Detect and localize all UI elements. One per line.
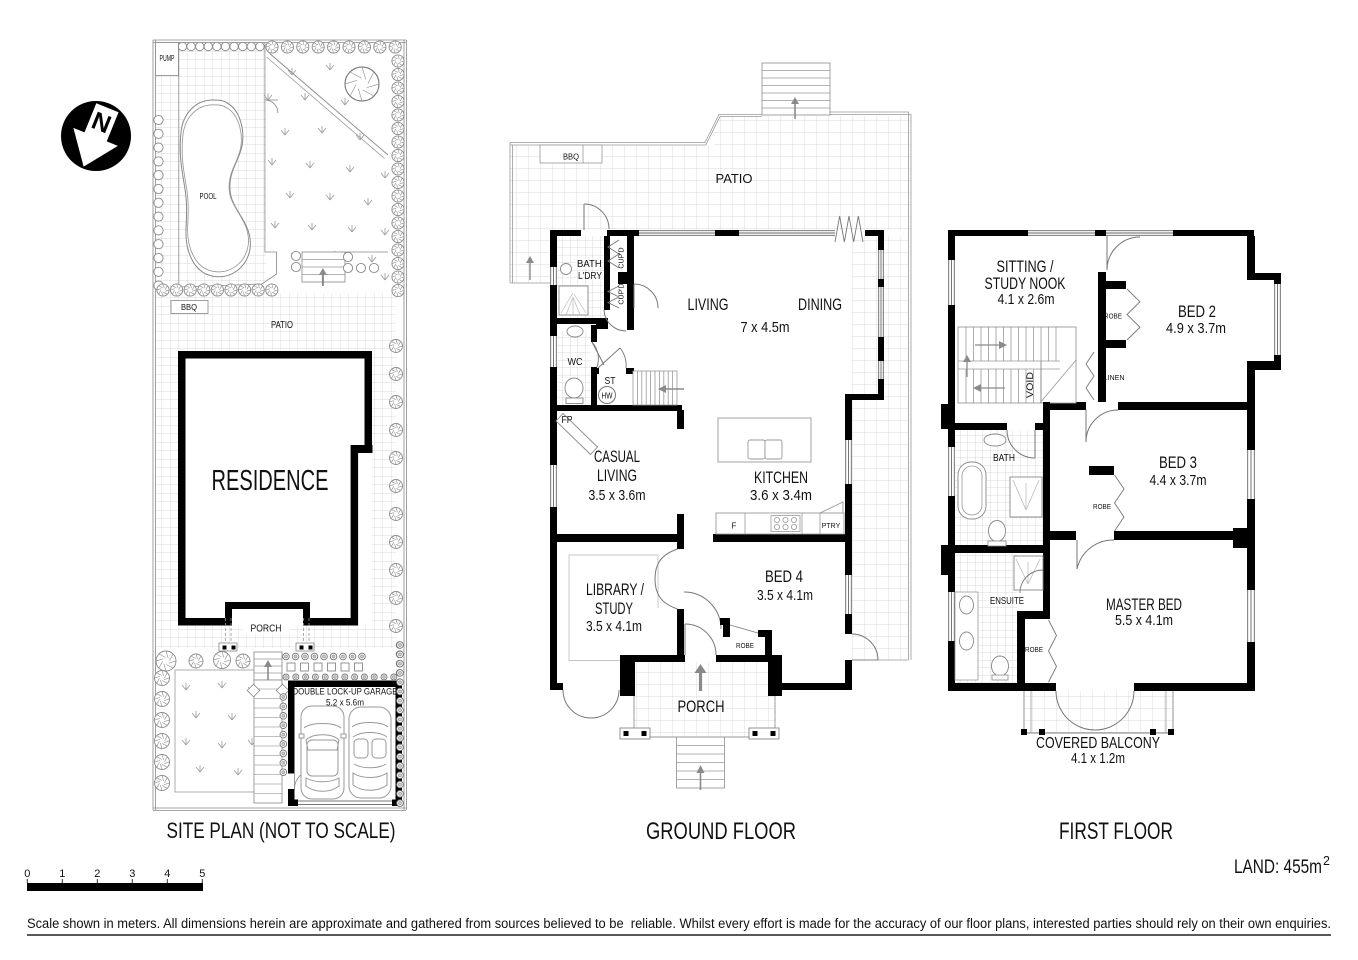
svg-text:1: 1	[59, 868, 65, 880]
svg-text:PATIO: PATIO	[716, 171, 753, 186]
svg-text:ROBE: ROBE	[1104, 314, 1122, 321]
svg-text:HW: HW	[602, 392, 613, 401]
svg-text:PTRY: PTRY	[822, 523, 841, 530]
svg-text:ROBE: ROBE	[1093, 504, 1111, 511]
svg-text:BED 4: BED 4	[765, 568, 803, 586]
svg-text:CASUAL: CASUAL	[594, 448, 640, 466]
svg-text:BATH /: BATH /	[577, 259, 607, 270]
svg-text:RESIDENCE: RESIDENCE	[212, 465, 329, 497]
svg-text:VOID: VOID	[1025, 372, 1036, 398]
svg-text:3: 3	[129, 868, 135, 880]
svg-text:LIBRARY /: LIBRARY /	[586, 581, 644, 599]
svg-text:GROUND FLOOR: GROUND FLOOR	[646, 818, 796, 845]
svg-text:DINING: DINING	[798, 296, 842, 314]
svg-text:0: 0	[24, 868, 30, 880]
svg-text:4.1 x 1.2m: 4.1 x 1.2m	[1071, 750, 1125, 767]
svg-text:SITE PLAN (NOT TO SCALE): SITE PLAN (NOT TO SCALE)	[167, 818, 396, 843]
svg-text:2: 2	[1323, 854, 1330, 868]
svg-text:3.6 x 3.4m: 3.6 x 3.4m	[750, 487, 812, 504]
svg-text:PUMP: PUMP	[160, 54, 175, 63]
svg-text:BED 3: BED 3	[1159, 454, 1197, 472]
svg-text:LIVING: LIVING	[597, 467, 637, 485]
svg-text:7 x 4.5m: 7 x 4.5m	[741, 319, 790, 336]
svg-text:BED 2: BED 2	[1178, 303, 1216, 321]
svg-text:4.4 x 3.7m: 4.4 x 3.7m	[1150, 472, 1207, 489]
svg-text:PORCH: PORCH	[678, 697, 725, 716]
svg-text:WC: WC	[568, 357, 583, 368]
svg-text:ROBE: ROBE	[1025, 647, 1043, 654]
svg-text:3.5 x 4.1m: 3.5 x 4.1m	[757, 587, 813, 604]
svg-text:ROBE: ROBE	[736, 643, 754, 650]
svg-text:Scale shown in meters. All dim: Scale shown in meters. All dimensions he…	[27, 916, 1331, 931]
svg-text:BBQ: BBQ	[563, 153, 579, 162]
svg-text:FIRST FLOOR: FIRST FLOOR	[1059, 818, 1173, 845]
svg-text:FP: FP	[562, 415, 573, 426]
svg-text:CUP'D: CUP'D	[619, 283, 626, 304]
svg-text:KITCHEN: KITCHEN	[754, 469, 808, 487]
svg-text:PATIO: PATIO	[271, 319, 293, 331]
svg-text:4: 4	[164, 868, 170, 880]
svg-text:POOL: POOL	[200, 191, 217, 201]
svg-text:5: 5	[199, 868, 205, 880]
svg-text:PORCH: PORCH	[251, 623, 282, 635]
svg-text:5.5 x 4.1m: 5.5 x 4.1m	[1115, 612, 1173, 629]
svg-text:DOUBLE LOCK-UP GARAGE: DOUBLE LOCK-UP GARAGE	[293, 687, 398, 698]
svg-text:CUP'D: CUP'D	[619, 247, 626, 268]
svg-text:STUDY: STUDY	[595, 600, 633, 618]
svg-text:ST: ST	[605, 376, 616, 387]
svg-text:LINEN: LINEN	[1104, 375, 1125, 382]
svg-text:2: 2	[94, 868, 100, 880]
svg-text:BATH: BATH	[993, 452, 1015, 464]
svg-text:4.1 x 2.6m: 4.1 x 2.6m	[998, 291, 1055, 308]
svg-text:ENSUITE: ENSUITE	[990, 595, 1024, 607]
svg-text:LAND: 455m: LAND: 455m	[1234, 857, 1322, 878]
svg-text:4.9 x 3.7m: 4.9 x 3.7m	[1166, 320, 1226, 337]
svg-text:F: F	[732, 522, 737, 531]
svg-text:3.5 x 3.6m: 3.5 x 3.6m	[589, 487, 646, 504]
svg-text:LIVING: LIVING	[688, 296, 729, 314]
svg-text:BBQ: BBQ	[181, 303, 197, 312]
svg-text:3.5 x 4.1m: 3.5 x 4.1m	[586, 618, 642, 635]
svg-text:L'DRY: L'DRY	[578, 271, 602, 282]
svg-text:SITTING /: SITTING /	[997, 258, 1054, 276]
